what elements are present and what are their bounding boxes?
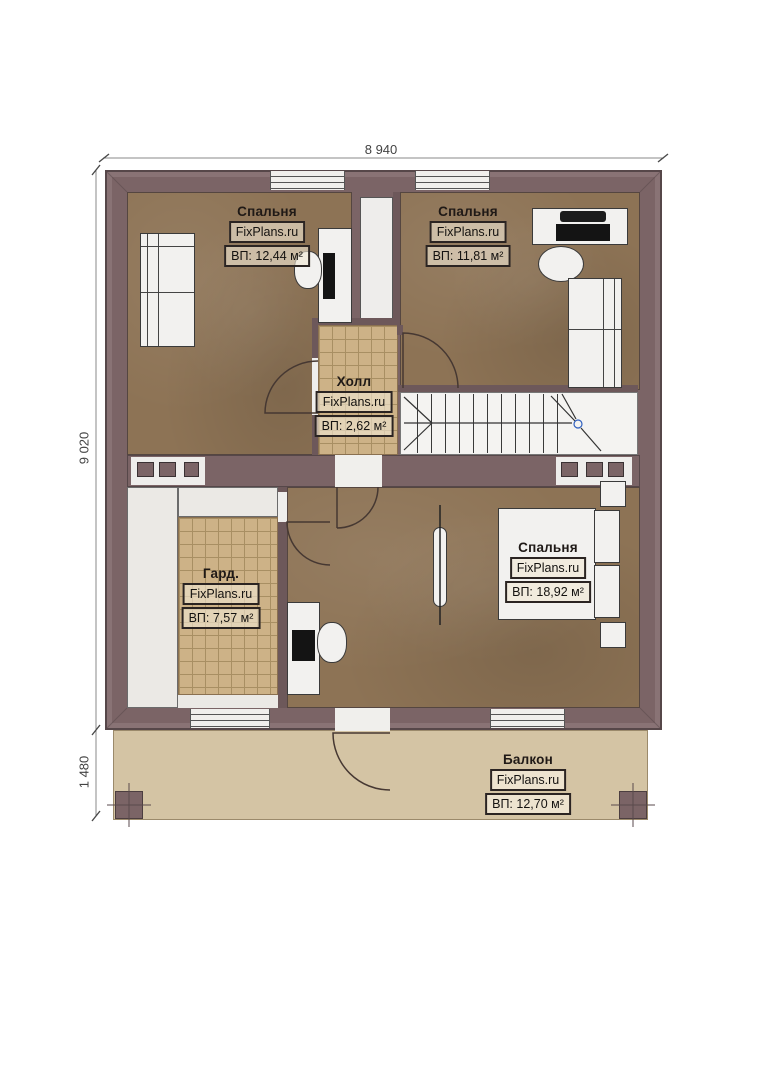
closet-left-wall	[127, 487, 178, 708]
area-box: ВП: 12,44 м²	[224, 245, 310, 267]
dimension-height: 9 020	[77, 432, 92, 465]
bed-line	[141, 292, 194, 293]
monitor-icon	[323, 253, 335, 299]
dimension-width: 8 940	[365, 142, 398, 157]
wall-shaft-right	[393, 192, 400, 325]
room-name: Гард.	[203, 566, 239, 581]
keyboard-icon	[556, 224, 610, 241]
bed-line	[141, 246, 194, 247]
duct-shaft	[360, 197, 393, 320]
brand-box: FixPlans.ru	[430, 221, 507, 243]
window-top-left	[270, 171, 345, 190]
brand-box: FixPlans.ru	[490, 769, 567, 791]
glass-block	[184, 462, 199, 477]
printer-icon	[560, 211, 606, 222]
nightstand-icon	[600, 481, 626, 507]
window-bottom-left	[190, 709, 270, 728]
bed-icon	[140, 233, 195, 347]
dimension-balcony: 1 480	[77, 756, 92, 789]
printer-icon	[292, 630, 315, 661]
balcony-column-right	[619, 791, 647, 819]
closet-wardrobe-top	[178, 487, 278, 517]
area-box: ВП: 11,81 м²	[426, 245, 511, 267]
floor-plan-canvas: 8 940 9 020 1 480 Спальня FixPlans.ru ВП…	[0, 0, 763, 1080]
window-top-right	[415, 171, 490, 190]
pillow-icon	[594, 565, 620, 618]
balcony-column-left	[115, 791, 143, 819]
chair-icon	[317, 622, 347, 663]
floor-lamp-icon	[433, 527, 447, 607]
glass-block	[586, 462, 603, 477]
bed-line	[147, 234, 159, 346]
room-label-wardrobe: Гард. FixPlans.ru ВП: 7,57 м²	[182, 566, 261, 629]
room-label-bedroom-tl: Спальня FixPlans.ru ВП: 12,44 м²	[224, 204, 310, 267]
balcony-door-opening	[335, 708, 390, 731]
bed-line	[603, 279, 615, 387]
chair-icon	[538, 246, 584, 282]
area-box: ВП: 2,62 м²	[315, 415, 394, 437]
stair-treads	[404, 394, 566, 453]
nightstand-icon	[600, 622, 626, 648]
room-name: Спальня	[438, 204, 498, 219]
pillow-icon	[594, 510, 620, 563]
bed-line	[569, 329, 621, 330]
brand-box: FixPlans.ru	[510, 557, 587, 579]
brand-box: FixPlans.ru	[316, 391, 393, 413]
room-label-bedroom-tr: Спальня FixPlans.ru ВП: 11,81 м²	[426, 204, 511, 267]
glass-block	[608, 462, 624, 477]
room-name: Спальня	[518, 540, 578, 555]
room-name: Холл	[337, 374, 372, 389]
area-box: ВП: 7,57 м²	[182, 607, 261, 629]
window-bottom-right	[490, 709, 565, 728]
glass-block	[561, 462, 578, 477]
room-name: Спальня	[237, 204, 297, 219]
area-box: ВП: 12,70 м²	[485, 793, 571, 815]
glass-block	[137, 462, 154, 477]
bed-icon	[568, 278, 622, 388]
wardrobe-bottom-strip	[178, 695, 278, 708]
door-gap-wardrobe	[278, 492, 287, 522]
glass-block	[159, 462, 176, 477]
room-label-bedroom-br: Спальня FixPlans.ru ВП: 18,92 м²	[505, 540, 591, 603]
room-label-balcony: Балкон FixPlans.ru ВП: 12,70 м²	[485, 752, 571, 815]
brand-box: FixPlans.ru	[229, 221, 306, 243]
door-gap-middle-band	[335, 455, 382, 487]
brand-box: FixPlans.ru	[183, 583, 260, 605]
room-label-hall: Холл FixPlans.ru ВП: 2,62 м²	[315, 374, 394, 437]
room-name: Балкон	[503, 752, 553, 767]
wall-hall-stair-stub	[397, 325, 403, 335]
area-box: ВП: 18,92 м²	[505, 581, 591, 603]
